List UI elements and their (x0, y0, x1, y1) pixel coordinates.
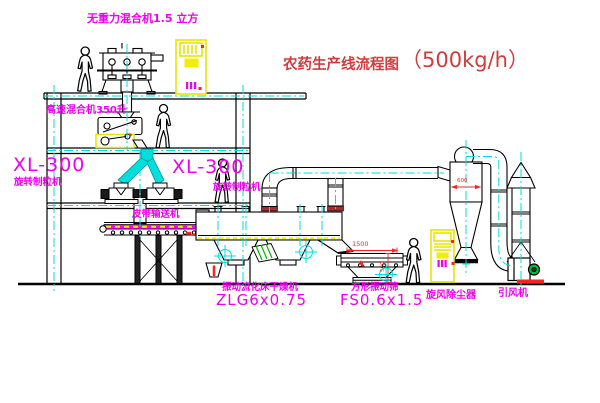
process-flow-diagram: 无重力混合机1.5 立方 农药生产线流程图 （500kg/h） 高速混合机350… (0, 0, 600, 403)
person-figure (215, 159, 230, 202)
person-figure (156, 105, 171, 148)
gravity-free-mixer (97, 43, 163, 112)
granulator-left (101, 183, 139, 204)
person-figure (406, 239, 421, 283)
granulator-right (141, 183, 182, 204)
induced-draft-fan (508, 258, 544, 284)
fluid-bed-dryer (196, 206, 353, 277)
diagram-title-text: 农药生产线流程图 (283, 53, 399, 74)
person-figure (78, 47, 93, 91)
control-cabinet-right (431, 230, 455, 282)
belt-conveyor (100, 223, 205, 284)
control-cabinet-top (176, 40, 206, 94)
high-speed-mixer (96, 112, 147, 148)
diagram-title-capacity: （500kg/h） (401, 44, 529, 74)
y-chute (118, 149, 164, 185)
diagram-title: 农药生产线流程图 （500kg/h） (283, 44, 529, 74)
vibrating-sieve (337, 254, 408, 284)
